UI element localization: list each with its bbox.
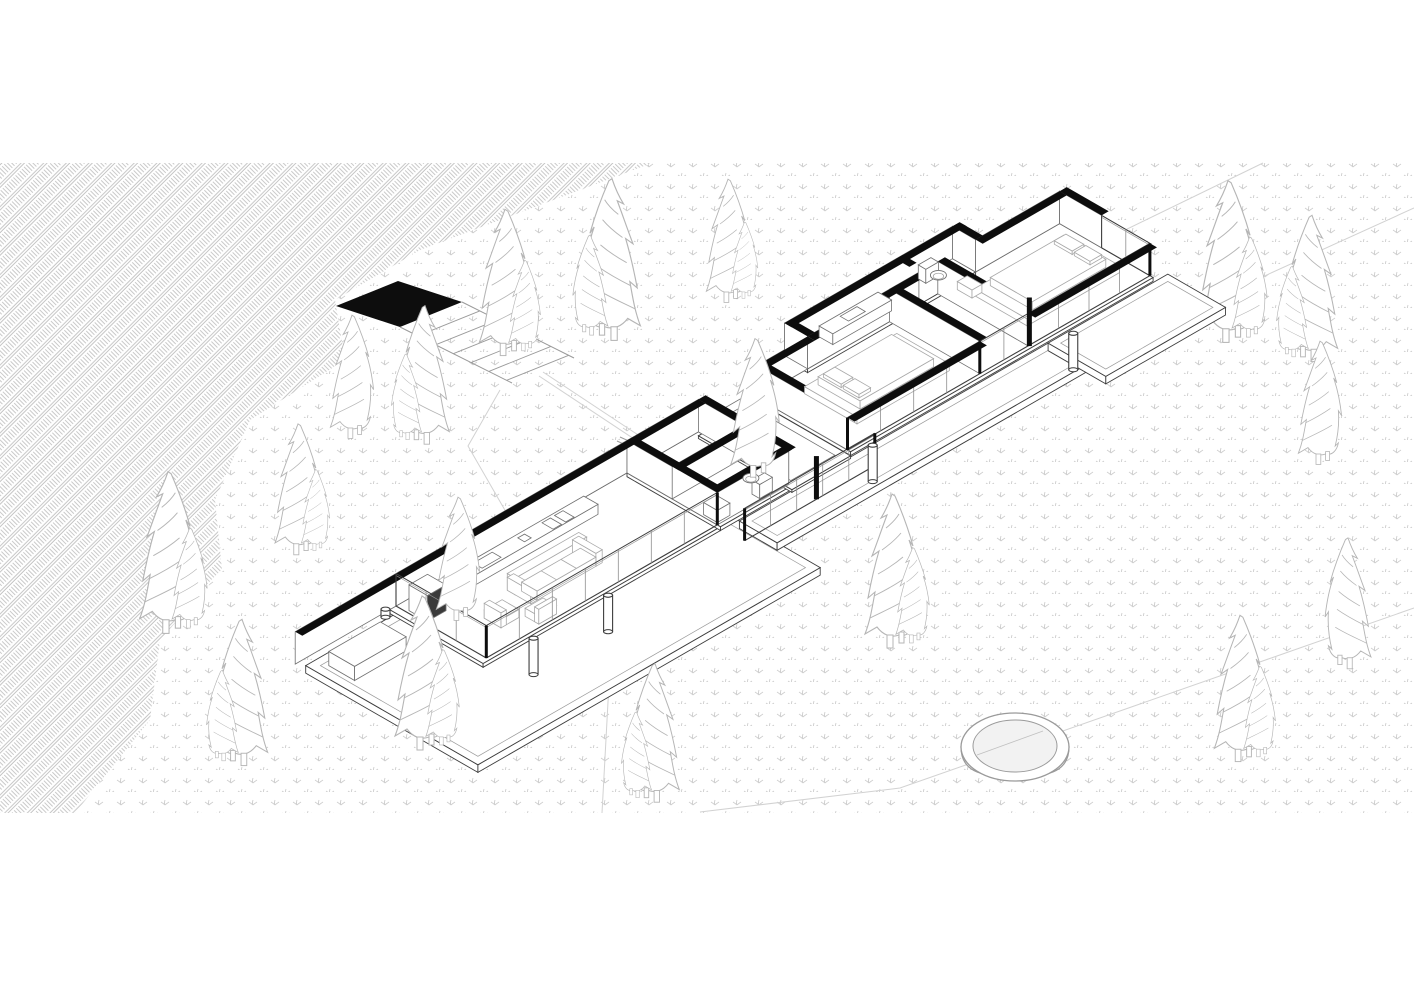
axonometric-site-drawing <box>0 0 1414 1000</box>
hot-tub <box>961 713 1069 781</box>
black-chimney-post <box>814 456 819 499</box>
outdoor-planter-pot <box>381 607 390 619</box>
toilet-2-bowl <box>930 270 946 280</box>
black-corner-post <box>1148 243 1151 275</box>
black-corner-post <box>846 418 849 450</box>
drawing-canvas <box>0 0 1414 1000</box>
round-white-column <box>868 443 877 483</box>
black-corner-post <box>716 493 719 525</box>
black-corner-post <box>485 626 488 658</box>
black-corner-post <box>743 508 746 540</box>
black-chimney-post <box>1027 297 1032 346</box>
round-white-column <box>604 593 613 634</box>
black-corner-post <box>978 341 981 373</box>
round-white-column <box>529 636 538 677</box>
round-white-column <box>1069 331 1078 372</box>
